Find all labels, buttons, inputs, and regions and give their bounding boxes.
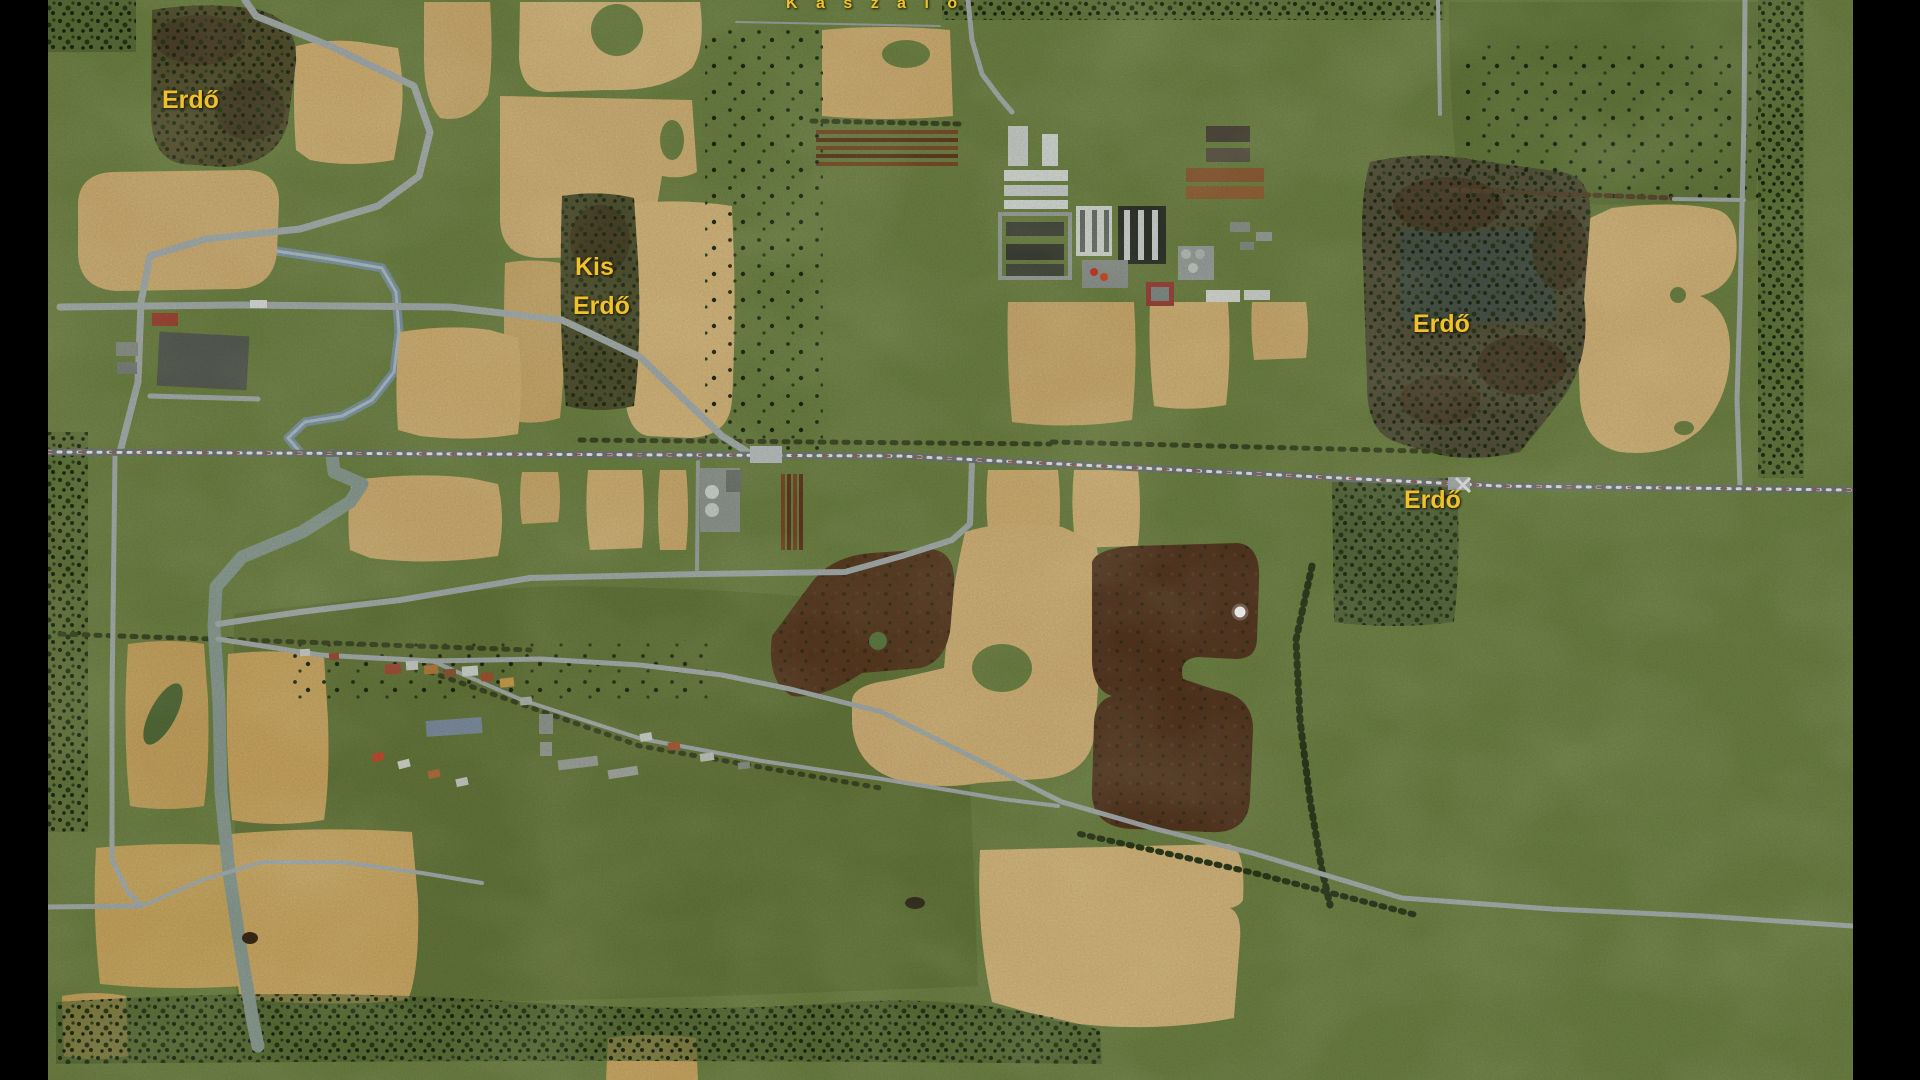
game-map-screen: K a s z á l ó Erdő Kis Erdő Erdő Erdő — [0, 0, 1920, 1080]
label-erdo-east-lower: Erdő — [1404, 486, 1461, 515]
label-kis-erdo-line2: Erdő — [573, 292, 630, 321]
label-erdo-northwest: Erdő — [162, 86, 219, 115]
map-canvas — [0, 0, 1920, 1080]
label-erdo-east-upper: Erdő — [1413, 310, 1470, 339]
label-kis-erdo-line1: Kis — [575, 253, 614, 282]
texture-grain — [48, 0, 1853, 1080]
label-kaszalo: K a s z á l ó — [786, 0, 964, 13]
